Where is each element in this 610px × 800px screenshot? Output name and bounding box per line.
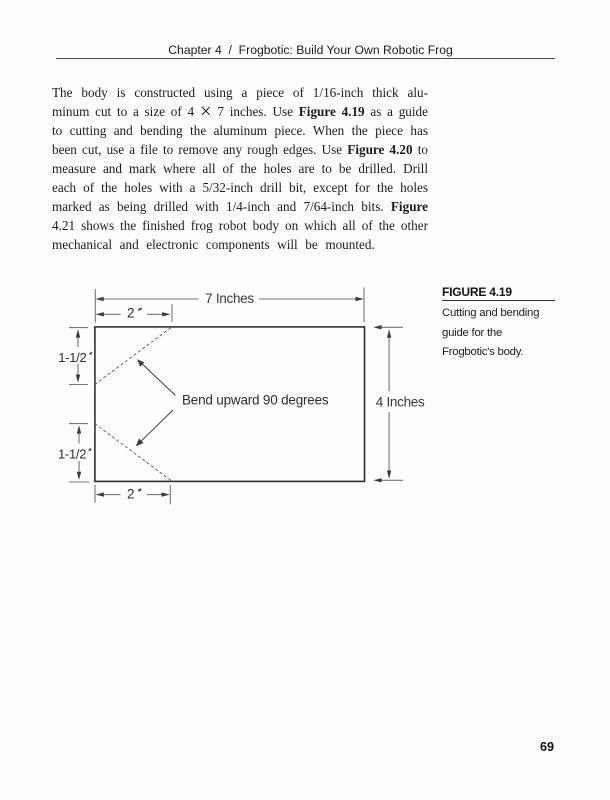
- svg-text:Bend upward 90 degrees: Bend upward 90 degrees: [182, 393, 329, 408]
- svg-text:1-1/2: 1-1/2: [58, 350, 86, 365]
- svg-text:7 Inches: 7 Inches: [205, 291, 254, 306]
- svg-text:1-1/2: 1-1/2: [58, 447, 86, 462]
- svg-text:2: 2: [127, 487, 135, 502]
- svg-text:2: 2: [127, 306, 135, 321]
- svg-text:4 Inches: 4 Inches: [376, 394, 425, 409]
